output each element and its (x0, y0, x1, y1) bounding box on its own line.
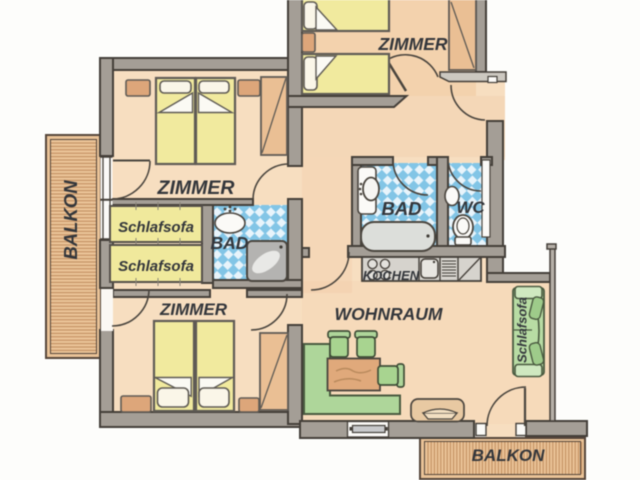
svg-text:BAD: BAD (381, 198, 421, 219)
svg-text:BAD: BAD (211, 233, 249, 253)
svg-text:BALKON: BALKON (472, 446, 545, 465)
svg-text:ZIMMER: ZIMMER (159, 300, 228, 319)
svg-text:ZIMMER: ZIMMER (157, 177, 235, 199)
svg-text:BALKON: BALKON (60, 180, 81, 260)
svg-text:Schlafsofa: Schlafsofa (514, 297, 529, 363)
svg-text:WOHNRAUM: WOHNRAUM (335, 304, 443, 324)
svg-text:Schlafsofa: Schlafsofa (118, 219, 194, 236)
svg-text:KOCHEN: KOCHEN (363, 268, 420, 283)
svg-text:WC: WC (456, 198, 485, 217)
svg-text:ZIMMER: ZIMMER (377, 34, 447, 54)
svg-text:Schlafsofa: Schlafsofa (118, 258, 194, 275)
